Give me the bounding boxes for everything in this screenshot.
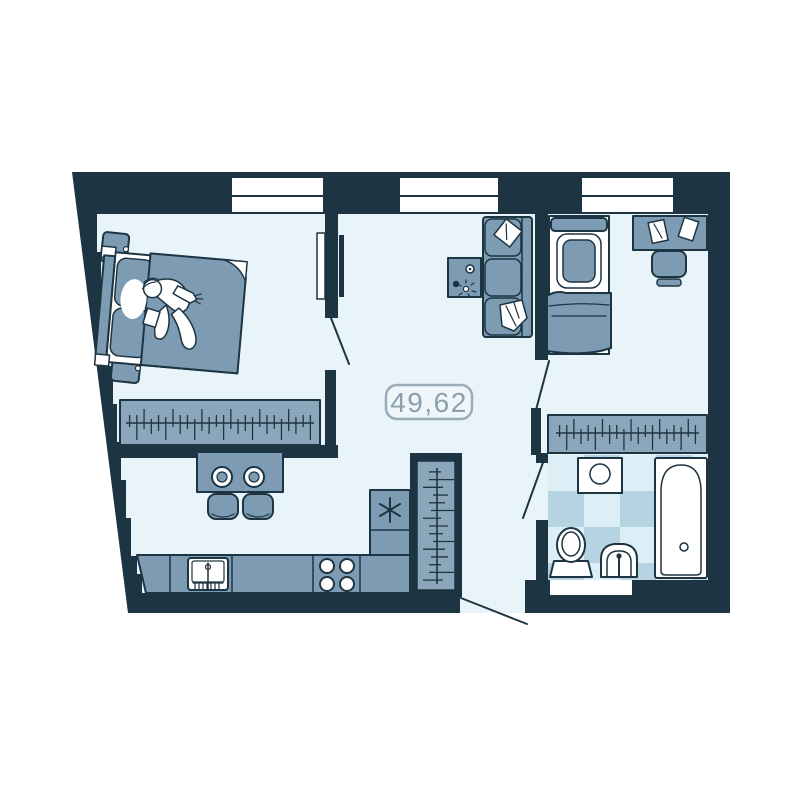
bathroom bbox=[548, 455, 707, 580]
desk-icon bbox=[633, 216, 707, 250]
area-label-text: 49,62 bbox=[390, 387, 468, 418]
bar-stool-icon bbox=[243, 494, 273, 519]
double-bed-icon bbox=[92, 246, 248, 377]
floor-plan: 49,62 bbox=[0, 0, 800, 800]
window-icon bbox=[400, 178, 498, 212]
coffee-table-icon bbox=[448, 258, 481, 297]
floor-plan-page: 49,62 bbox=[0, 0, 800, 800]
kitchen-sink-icon bbox=[188, 558, 228, 590]
wardrobe-hangers-icon bbox=[410, 453, 462, 597]
washing-machine-icon bbox=[578, 458, 622, 493]
bar-table-icon bbox=[197, 452, 283, 492]
desk-chair-icon bbox=[652, 251, 686, 286]
wall-niche bbox=[550, 580, 632, 595]
window-icon bbox=[582, 178, 673, 212]
wardrobe-hangers-icon bbox=[548, 415, 707, 453]
area-label: 49,62 bbox=[386, 385, 472, 419]
bar-stool-icon bbox=[208, 494, 238, 519]
bathtub-icon bbox=[655, 458, 707, 578]
wardrobe-hangers-icon bbox=[120, 400, 320, 445]
wash-basin-icon bbox=[601, 544, 637, 577]
window-icon bbox=[232, 178, 323, 212]
sofa-icon bbox=[483, 217, 532, 337]
single-bed-icon bbox=[547, 216, 611, 354]
